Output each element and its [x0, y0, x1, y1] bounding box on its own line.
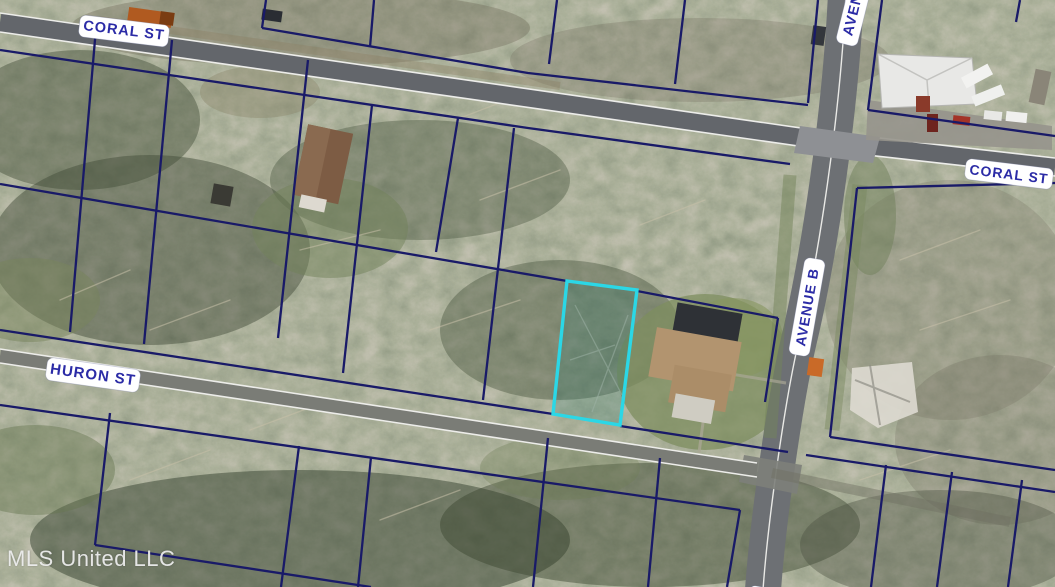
- parcel-map-image: CORAL ST CORAL ST HURON ST AVENUE B AVEN…: [0, 0, 1055, 587]
- watermark-attribution: MLS United LLC: [7, 546, 175, 572]
- equipment-orange: [807, 357, 824, 377]
- highlighted-parcel[interactable]: [553, 281, 637, 425]
- shed-west: [210, 183, 233, 206]
- map-viewport[interactable]: CORAL ST CORAL ST HURON ST AVENUE B AVEN…: [0, 0, 1055, 587]
